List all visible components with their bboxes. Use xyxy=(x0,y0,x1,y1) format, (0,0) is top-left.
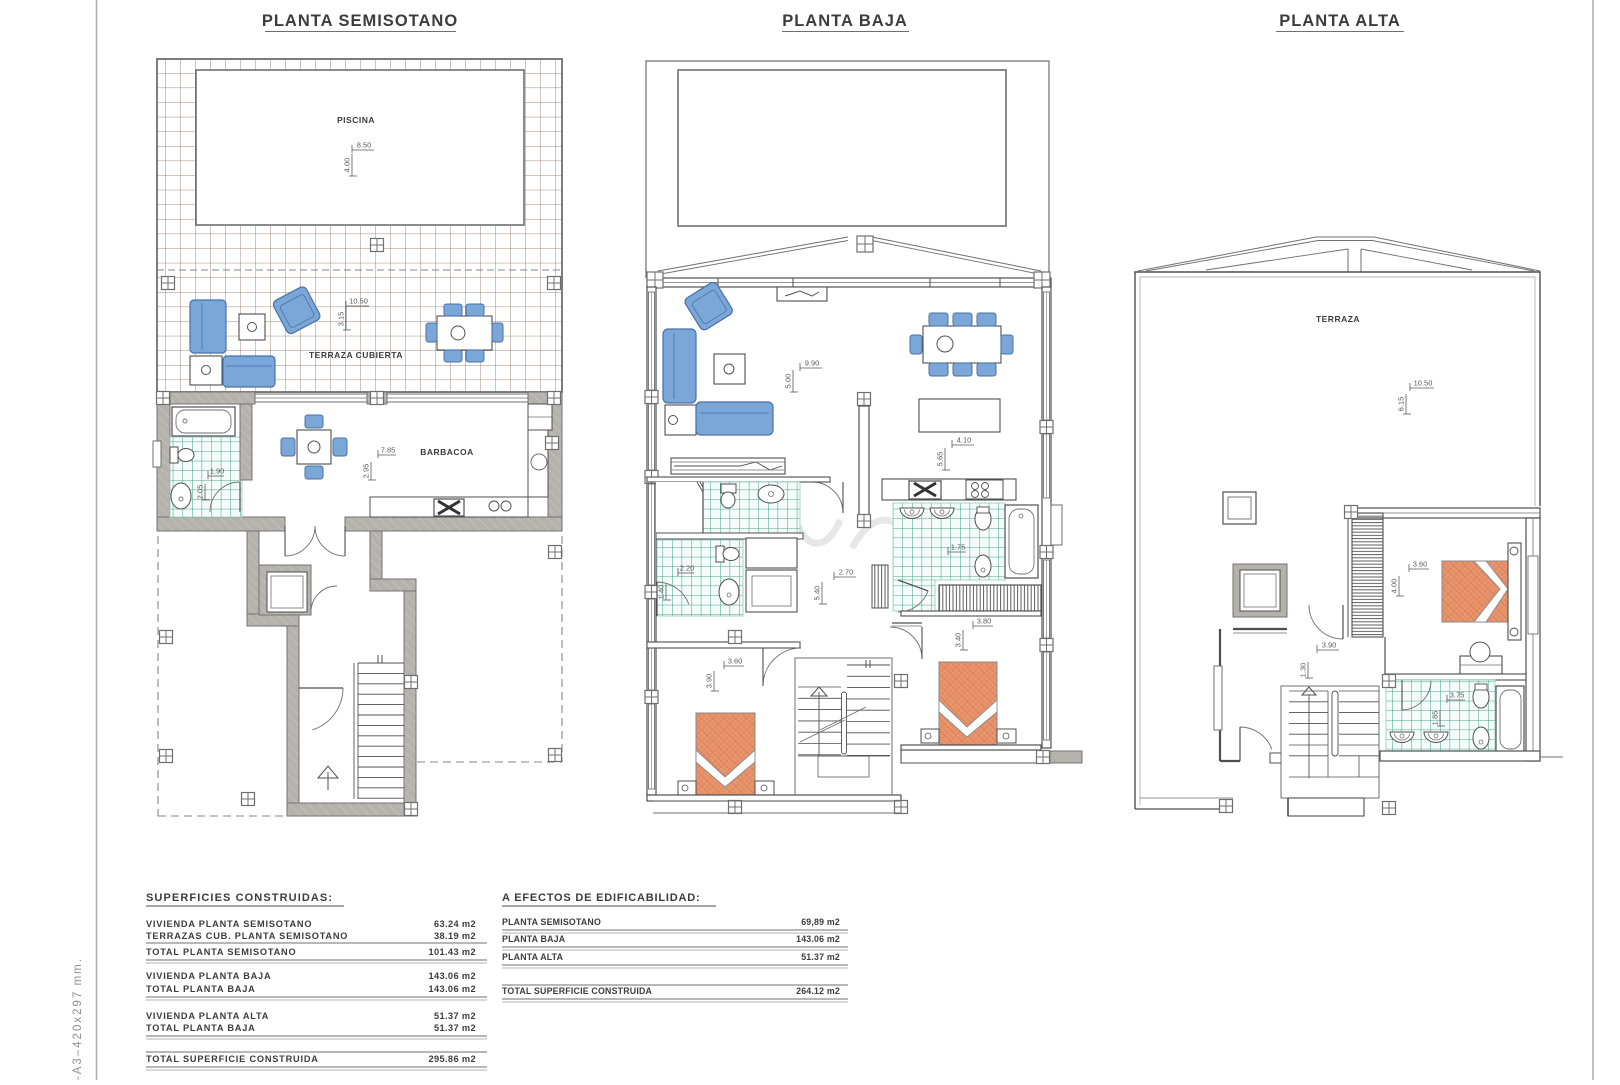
svg-text:51.37 m2: 51.37 m2 xyxy=(801,952,840,962)
svg-text:1.90: 1.90 xyxy=(210,467,225,476)
svg-text:TOTAL PLANTA SEMISOTANO: TOTAL PLANTA SEMISOTANO xyxy=(146,947,296,957)
svg-text:TERRAZA CUBIERTA: TERRAZA CUBIERTA xyxy=(309,350,403,360)
svg-text:143.06 m2: 143.06 m2 xyxy=(428,971,476,981)
svg-text:PLANTA ALTA: PLANTA ALTA xyxy=(1279,12,1401,30)
svg-text:PLANTA BAJA: PLANTA BAJA xyxy=(782,12,908,30)
svg-text:PLANTA SEMISOTANO: PLANTA SEMISOTANO xyxy=(502,917,601,927)
svg-text:PLANTA ALTA: PLANTA ALTA xyxy=(502,952,564,962)
svg-text:4.00: 4.00 xyxy=(343,158,352,173)
svg-text:4.00: 4.00 xyxy=(1390,579,1399,594)
svg-text:7.85: 7.85 xyxy=(381,446,396,455)
svg-text:4.10: 4.10 xyxy=(957,436,972,445)
svg-text:51.37 m2: 51.37 m2 xyxy=(434,1023,476,1033)
svg-text:3.60: 3.60 xyxy=(728,657,743,666)
svg-text:TOTAL PLANTA BAJA: TOTAL PLANTA BAJA xyxy=(146,1023,256,1033)
svg-text:3.60: 3.60 xyxy=(1413,560,1428,569)
svg-text:2.70: 2.70 xyxy=(839,568,854,577)
svg-text:TOTAL SUPERFICIE CONSTRUIDA: TOTAL SUPERFICIE CONSTRUIDA xyxy=(502,986,653,996)
svg-text:5.00: 5.00 xyxy=(784,374,793,389)
svg-text:2.05: 2.05 xyxy=(196,485,205,500)
svg-text:63.24 m2: 63.24 m2 xyxy=(434,919,476,929)
svg-text:PLANTA SEMISOTANO: PLANTA SEMISOTANO xyxy=(262,12,458,30)
svg-text:9.90: 9.90 xyxy=(805,359,820,368)
svg-text:3.40: 3.40 xyxy=(954,633,963,648)
svg-text:PLANTA BAJA: PLANTA BAJA xyxy=(502,934,566,944)
svg-text:TOTAL SUPERFICIE CONSTRUIDA: TOTAL SUPERFICIE CONSTRUIDA xyxy=(146,1054,319,1064)
svg-text:2.20: 2.20 xyxy=(680,564,695,573)
svg-text:VIVIENDA PLANTA BAJA: VIVIENDA PLANTA BAJA xyxy=(146,971,271,981)
svg-text:TOTAL PLANTA BAJA: TOTAL PLANTA BAJA xyxy=(146,984,256,994)
svg-text:264.12 m2: 264.12 m2 xyxy=(796,986,840,996)
svg-text:PISCINA: PISCINA xyxy=(337,115,375,125)
svg-text:8.50: 8.50 xyxy=(357,141,372,150)
svg-text:3.80: 3.80 xyxy=(977,617,992,626)
svg-text:1.40: 1.40 xyxy=(657,585,666,600)
svg-text:5.65: 5.65 xyxy=(936,452,945,467)
svg-text:101.43 m2: 101.43 m2 xyxy=(428,947,476,957)
svg-text:143.06 m2: 143.06 m2 xyxy=(796,934,840,944)
svg-text:A EFECTOS DE EDIFICABILIDAD:: A EFECTOS DE EDIFICABILIDAD: xyxy=(502,892,700,904)
svg-text:VIVIENDA PLANTA ALTA: VIVIENDA PLANTA ALTA xyxy=(146,1011,269,1021)
svg-text:295.86 m2: 295.86 m2 xyxy=(428,1054,476,1064)
svg-text:3.75: 3.75 xyxy=(1450,691,1465,700)
svg-text:3.90: 3.90 xyxy=(1322,641,1337,650)
svg-text:1.85: 1.85 xyxy=(1431,711,1440,726)
svg-text:51.37 m2: 51.37 m2 xyxy=(434,1011,476,1021)
svg-text:143.06 m2: 143.06 m2 xyxy=(428,984,476,994)
svg-text:TERRAZAS CUB. PLANTA SEMISOTA: TERRAZAS CUB. PLANTA SEMISOTANO xyxy=(146,931,348,941)
svg-text:5.40: 5.40 xyxy=(813,586,822,601)
svg-text:10.50: 10.50 xyxy=(1414,379,1433,388)
svg-text:BARBACOA: BARBACOA xyxy=(420,447,474,457)
svg-text:6.15: 6.15 xyxy=(1397,397,1406,412)
svg-text:69,89 m2: 69,89 m2 xyxy=(801,917,840,927)
svg-text:1.30: 1.30 xyxy=(1299,663,1308,678)
svg-text:SUPERFICIES CONSTRUIDAS:: SUPERFICIES CONSTRUIDAS: xyxy=(146,892,333,904)
svg-text:1.75: 1.75 xyxy=(951,543,966,552)
svg-text:N–A3–420x297 mm.: N–A3–420x297 mm. xyxy=(72,957,84,1080)
svg-text:38.19 m2: 38.19 m2 xyxy=(434,931,476,941)
svg-text:2.95: 2.95 xyxy=(362,464,371,479)
svg-text:3.90: 3.90 xyxy=(705,674,714,689)
svg-text:3.15: 3.15 xyxy=(337,312,346,327)
svg-text:VIVIENDA PLANTA SEMISOTANO: VIVIENDA PLANTA SEMISOTANO xyxy=(146,919,312,929)
svg-text:10.50: 10.50 xyxy=(349,297,368,306)
svg-text:TERRAZA: TERRAZA xyxy=(1316,314,1360,324)
